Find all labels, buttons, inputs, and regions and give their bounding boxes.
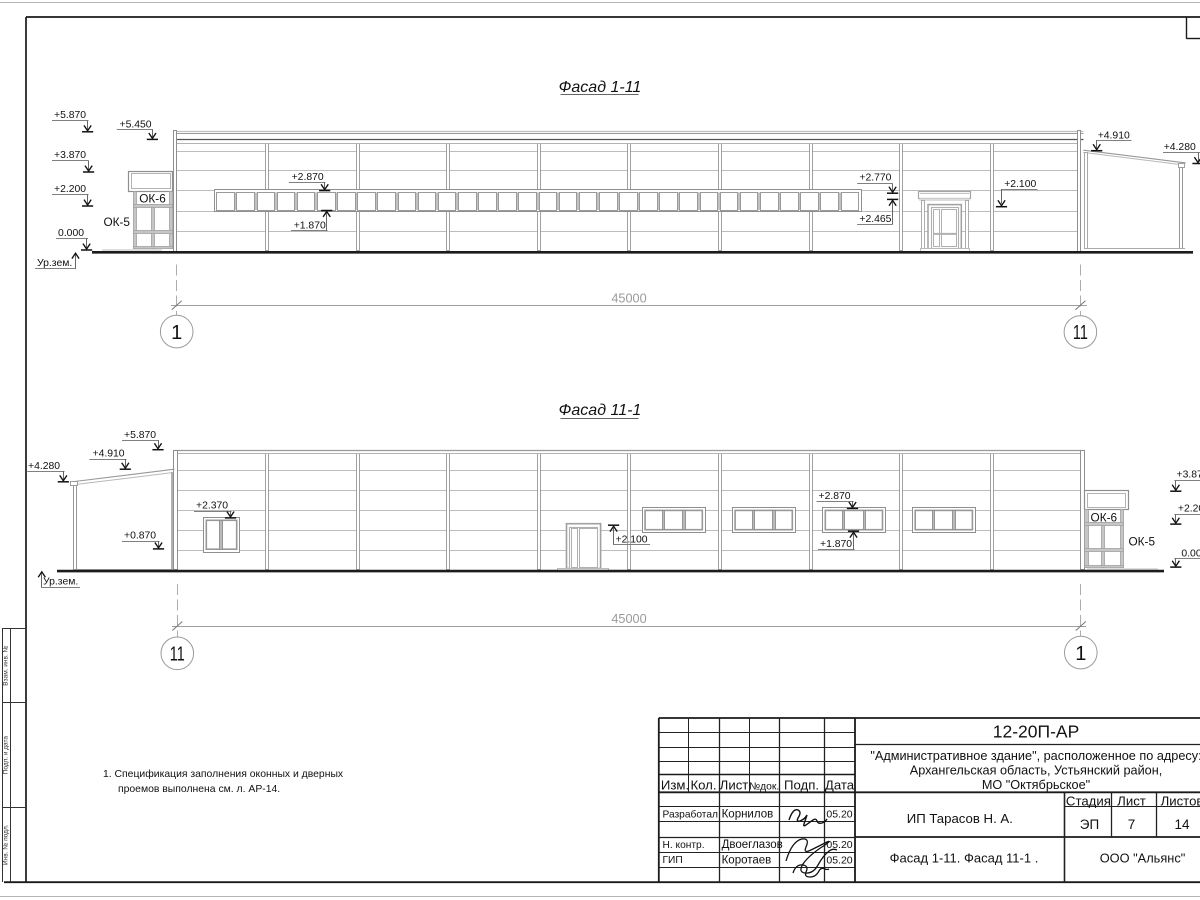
svg-text:14: 14 [1174,817,1190,832]
svg-text:7: 7 [1128,817,1136,832]
svg-text:0.000: 0.000 [1181,549,1200,560]
svg-text:05.20: 05.20 [826,809,852,821]
svg-text:Дата: Дата [825,777,855,792]
svg-text:05.20: 05.20 [826,854,852,866]
svg-text:№док.: №док. [749,781,779,792]
svg-text:+2.200: +2.200 [1178,504,1200,515]
svg-text:ОК-5: ОК-5 [1129,535,1156,549]
svg-text:+2.870: +2.870 [292,172,324,183]
svg-text:+2.370: +2.370 [196,501,228,512]
svg-text:45000: 45000 [611,612,646,626]
svg-text:+2.465: +2.465 [859,214,891,225]
svg-text:1. Спецификация заполнения око: 1. Спецификация заполнения оконных и две… [103,768,344,780]
svg-text:+5.450: +5.450 [120,119,152,130]
svg-text:+4.910: +4.910 [1098,130,1130,141]
svg-text:ОК-5: ОК-5 [103,215,130,229]
svg-text:Лист: Лист [720,777,749,792]
svg-text:ГИП: ГИП [663,855,683,866]
svg-text:+2.870: +2.870 [819,491,851,502]
svg-text:Изм.: Изм. [661,777,689,792]
svg-text:Лист: Лист [1117,793,1146,808]
svg-text:ИП Тарасов Н. А.: ИП Тарасов Н. А. [907,811,1013,826]
svg-text:Ур.зем.: Ур.зем. [37,258,72,269]
svg-text:11: 11 [170,644,185,666]
svg-text:+5.870: +5.870 [124,430,156,441]
svg-text:+0.870: +0.870 [124,531,156,542]
svg-text:Стадия: Стадия [1066,793,1111,808]
svg-text:05.20: 05.20 [826,839,852,851]
svg-text:Кол.: Кол. [690,777,716,792]
svg-text:+2.100: +2.100 [1004,179,1036,190]
svg-text:45000: 45000 [611,292,646,306]
svg-text:12-20П-АР: 12-20П-АР [993,721,1080,741]
svg-text:Корнилов: Корнилов [722,809,774,821]
svg-text:+5.870: +5.870 [54,110,86,121]
svg-text:+2.200: +2.200 [54,184,86,195]
svg-text:1: 1 [171,322,182,344]
svg-text:Фасад 11-1: Фасад 11-1 [559,402,642,419]
svg-text:ОК-6: ОК-6 [139,192,166,206]
svg-text:Инв. № подл.: Инв. № подл. [2,824,9,865]
svg-text:Подп. и дата: Подп. и дата [2,736,9,775]
svg-text:ЭП: ЭП [1080,817,1099,832]
svg-text:Подп.: Подп. [784,777,819,792]
svg-text:1: 1 [1075,643,1086,665]
svg-text:Листов: Листов [1161,793,1200,808]
svg-text:ООО "Альянс": ООО "Альянс" [1100,850,1186,865]
svg-text:Двоеглазов: Двоеглазов [722,839,783,851]
svg-text:+4.280: +4.280 [1164,142,1196,153]
svg-text:+3.870: +3.870 [54,150,86,161]
svg-text:Н. контр.: Н. контр. [663,840,705,851]
svg-text:+1.870: +1.870 [820,539,852,550]
svg-text:11: 11 [1073,322,1088,344]
svg-text:0.000: 0.000 [58,228,84,239]
svg-text:МО "Октябрьское": МО "Октябрьское" [982,778,1090,792]
svg-text:Взам. инв. №: Взам. инв. № [2,645,9,685]
svg-text:+2.100: +2.100 [616,535,648,546]
svg-text:Коротаев: Коротаев [722,854,772,866]
svg-text:Фасад 1-11: Фасад 1-11 [559,79,642,96]
svg-text:Разработал: Разработал [663,808,719,820]
svg-text:проемов выполнена см. л. АР-14: проемов выполнена см. л. АР-14. [118,784,280,795]
svg-text:+4.280: +4.280 [28,461,60,472]
svg-text:Архангельская область, Устьянс: Архангельская область, Устьянский район, [910,764,1163,778]
svg-text:Фасад 1-11. Фасад 11-1 .: Фасад 1-11. Фасад 11-1 . [890,851,1039,866]
svg-text:+1.870: +1.870 [294,221,326,232]
svg-text:+3.870: +3.870 [1177,470,1200,481]
svg-text:Ур.зем.: Ур.зем. [43,577,78,588]
svg-text:+4.910: +4.910 [93,449,125,460]
svg-text:"Административное здание", рас: "Административное здание", расположенное… [870,749,1200,763]
svg-text:+2.770: +2.770 [859,173,891,184]
